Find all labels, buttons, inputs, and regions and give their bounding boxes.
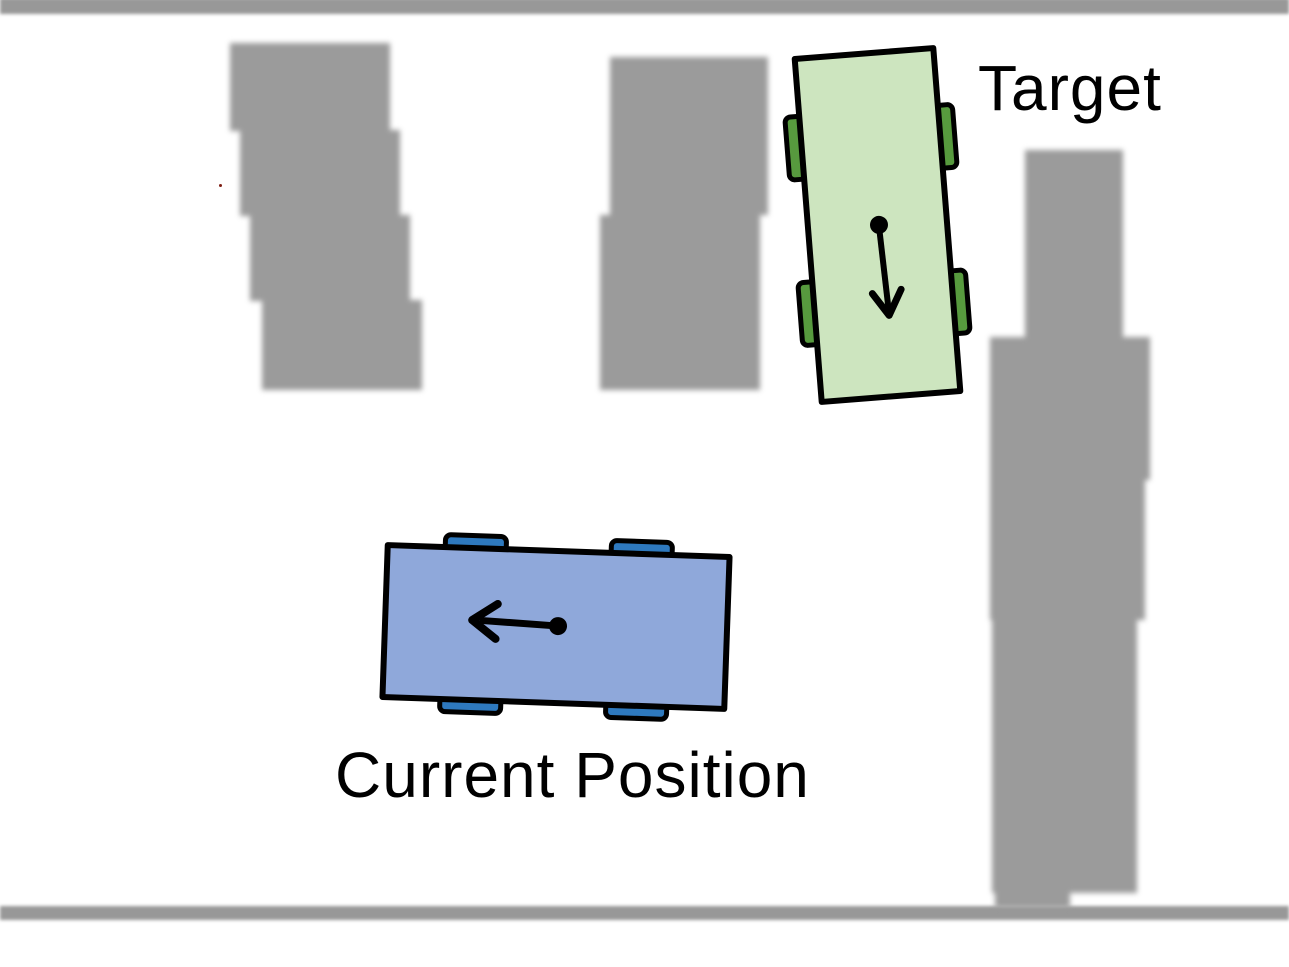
obstacle-slab [610,57,768,215]
obstacle-slab [1025,150,1123,340]
parking-scenario-diagram: Target Current Position [0,0,1289,967]
obstacle-blob-left [0,0,1289,967]
current-arrow-shaft [479,620,558,626]
obstacle-column-right [0,0,1289,967]
obstacle-slab [600,215,760,390]
current-position-vehicle [379,542,732,712]
target-heading-arrow [791,45,963,405]
obstacle-slab [990,337,1150,480]
obstacle-slab [992,620,1137,893]
current-position-label: Current Position [335,743,810,807]
obstacle-slab [990,480,1145,620]
obstacle-slab [230,43,390,131]
wall-bottom [0,906,1289,920]
obstacle-slab [262,300,422,390]
red-marker-dot [219,184,222,187]
current-heading-arrow [379,542,732,712]
obstacle-blob-middle [0,0,1289,967]
wall-top [0,0,1289,14]
target-vehicle [791,45,963,405]
obstacle-slab [250,215,410,301]
target-label: Target [978,56,1162,120]
obstacle-slab [240,130,400,216]
